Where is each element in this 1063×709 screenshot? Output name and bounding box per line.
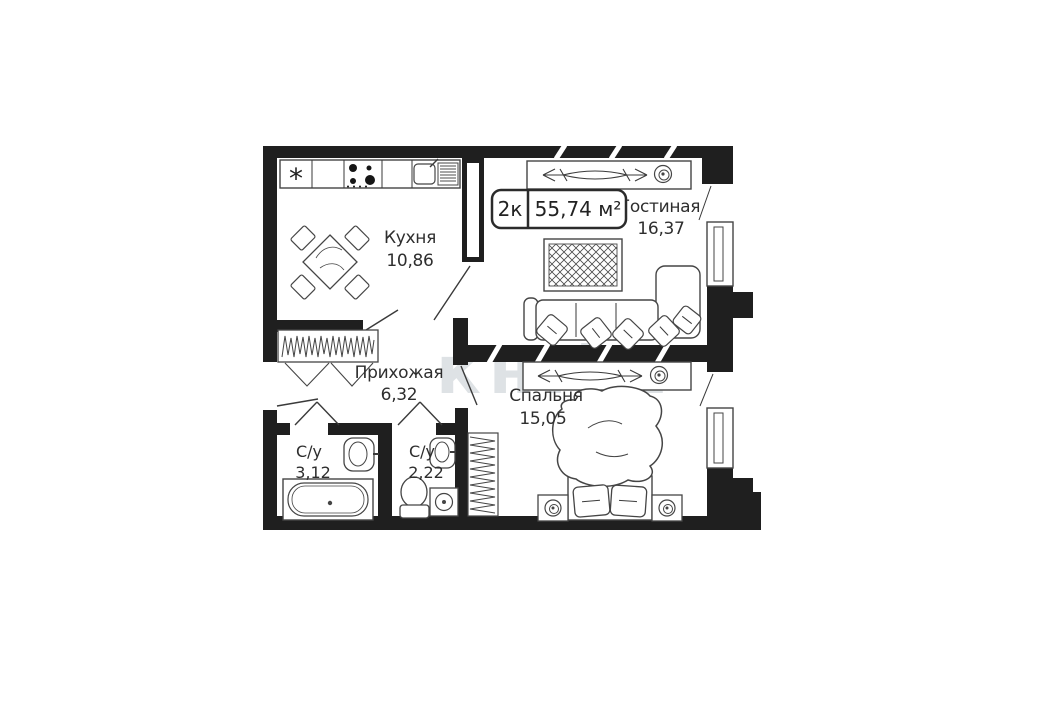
rug <box>544 239 622 291</box>
lamp-icon <box>666 507 669 510</box>
room-name: Спальня <box>509 386 583 406</box>
wall-hall-right <box>453 318 468 365</box>
room-name: Прихожая <box>355 363 444 383</box>
chair <box>290 274 315 299</box>
room-area: 15,05 <box>519 409 566 429</box>
window-bottom <box>707 408 733 468</box>
wall-right-lower <box>707 468 733 530</box>
wall-top <box>263 146 712 158</box>
floor-plan-page: кн.kz <box>0 0 1063 709</box>
bedroom-rack <box>468 433 498 516</box>
floor-plan: кн.kz <box>0 0 1063 709</box>
wall-corner-block-tr <box>702 146 733 184</box>
kitchen-opening-line-a <box>434 266 470 320</box>
window-bottom-frame <box>707 408 733 468</box>
wall-bath-divider <box>378 423 392 530</box>
wall-bath-top-a <box>263 423 290 435</box>
badge-area: 55,74 м² <box>535 197 622 221</box>
room-label-living: Гостиная 16,37 <box>620 197 700 239</box>
wall-pier-mid <box>733 292 753 318</box>
hanger-triangle <box>285 363 329 386</box>
bath1-door-leaf-b <box>317 402 339 425</box>
balcony-door-bottom <box>700 372 733 408</box>
room-name: Гостиная <box>620 197 700 217</box>
room-label-bath1: С/у 3,12 <box>295 442 331 482</box>
balcony-door-top <box>699 184 733 222</box>
room-area: 16,37 <box>637 219 684 239</box>
rug-pattern <box>549 244 617 286</box>
nightstand-right <box>652 495 682 521</box>
toilet <box>400 477 429 518</box>
nightstand-left <box>538 495 568 521</box>
balcony-door-top-opening <box>707 184 733 222</box>
chair <box>344 225 369 250</box>
chair <box>290 225 315 250</box>
bath1-door-leaf-a <box>295 402 317 425</box>
fridge-icon: * <box>289 162 303 195</box>
wall-shaft-core <box>467 163 479 257</box>
bathtub <box>283 479 373 520</box>
dining-set <box>290 225 369 299</box>
room-area: 10,86 <box>386 251 433 271</box>
washbasin <box>344 438 379 471</box>
wall-pier-lower <box>733 478 753 508</box>
washing-machine <box>430 488 458 516</box>
area-badge: 2к 55,74 м² <box>492 190 626 228</box>
kitchen-opening-line-b <box>366 310 398 330</box>
bath2-door-leaf-a <box>398 402 420 425</box>
room-label-hallway: Прихожая 6,32 <box>355 363 444 405</box>
balcony-door-bottom-opening <box>707 372 733 408</box>
badge-rooms: 2к <box>498 197 523 221</box>
room-area: 2,22 <box>408 463 444 482</box>
window-top <box>707 222 733 286</box>
room-name: Кухня <box>384 228 436 248</box>
lamp-icon <box>552 507 555 510</box>
living-wardrobe <box>527 161 691 189</box>
drain <box>328 501 332 505</box>
chair <box>344 274 369 299</box>
room-name: С/у <box>296 442 322 461</box>
room-area: 6,32 <box>381 385 418 405</box>
kitchen-counter: * <box>280 159 460 195</box>
room-name: С/у <box>409 442 435 461</box>
room-label-kitchen: Кухня 10,86 <box>384 228 436 271</box>
entrance-door-leaf <box>277 399 318 406</box>
room-area: 3,12 <box>295 463 331 482</box>
window-top-frame <box>707 222 733 286</box>
dining-table <box>303 235 357 289</box>
